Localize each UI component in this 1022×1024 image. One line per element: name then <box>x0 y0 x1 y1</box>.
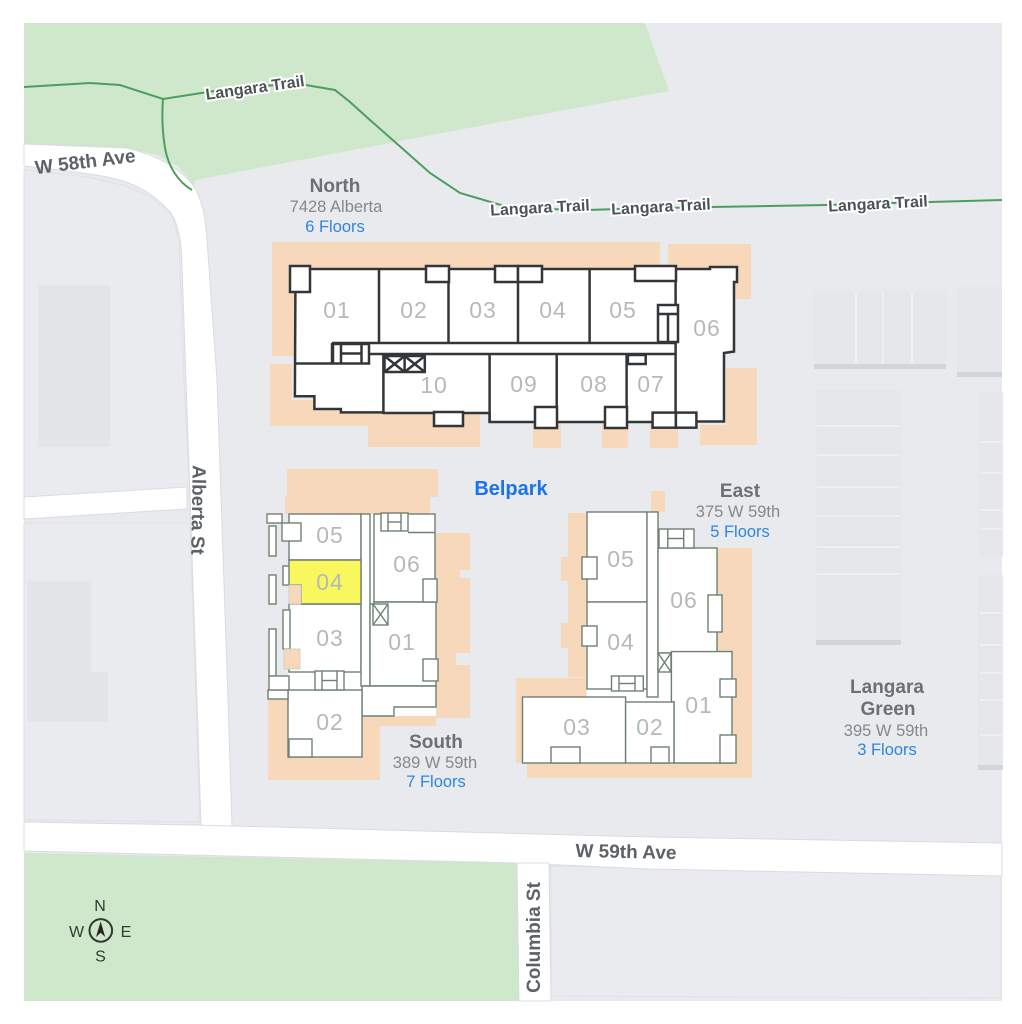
svg-text:03: 03 <box>563 714 591 740</box>
svg-text:7428 Alberta: 7428 Alberta <box>290 198 383 216</box>
svg-text:South: South <box>409 732 463 753</box>
svg-text:North: North <box>310 176 361 197</box>
svg-text:06: 06 <box>670 587 698 613</box>
svg-text:10: 10 <box>420 372 448 398</box>
svg-text:05: 05 <box>607 546 635 572</box>
svg-text:Green: Green <box>861 699 916 720</box>
svg-text:E: E <box>121 924 132 941</box>
svg-text:East: East <box>720 481 761 502</box>
svg-text:09: 09 <box>510 371 538 397</box>
svg-text:375 W 59th: 375 W 59th <box>696 503 780 521</box>
svg-text:Alberta St: Alberta St <box>186 465 209 556</box>
svg-text:395 W 59th: 395 W 59th <box>844 722 928 740</box>
svg-text:01: 01 <box>685 692 713 718</box>
svg-text:04: 04 <box>316 569 344 595</box>
svg-text:N: N <box>94 898 106 915</box>
svg-text:02: 02 <box>400 297 428 323</box>
svg-text:01: 01 <box>388 629 416 655</box>
svg-text:7 Floors: 7 Floors <box>406 773 466 791</box>
svg-text:06: 06 <box>693 315 721 341</box>
svg-text:05: 05 <box>609 297 637 323</box>
svg-text:Columbia St: Columbia St <box>524 881 545 993</box>
svg-text:04: 04 <box>539 297 567 323</box>
svg-text:Langara: Langara <box>850 677 924 698</box>
svg-text:5 Floors: 5 Floors <box>710 523 770 541</box>
svg-text:Belpark: Belpark <box>474 478 548 500</box>
svg-text:02: 02 <box>316 709 344 735</box>
svg-text:6 Floors: 6 Floors <box>305 218 365 236</box>
svg-text:04: 04 <box>607 629 635 655</box>
svg-text:389 W 59th: 389 W 59th <box>393 754 477 772</box>
svg-text:06: 06 <box>393 551 421 577</box>
svg-text:S: S <box>95 949 106 966</box>
svg-text:W 59th Ave: W 59th Ave <box>575 841 676 864</box>
svg-text:03: 03 <box>469 297 497 323</box>
svg-text:08: 08 <box>580 371 608 397</box>
svg-text:07: 07 <box>637 371 665 397</box>
svg-text:03: 03 <box>316 625 344 651</box>
svg-text:02: 02 <box>636 714 664 740</box>
svg-text:3 Floors: 3 Floors <box>857 741 917 759</box>
svg-text:05: 05 <box>316 522 344 548</box>
svg-text:W: W <box>69 924 85 941</box>
svg-text:01: 01 <box>323 297 351 323</box>
